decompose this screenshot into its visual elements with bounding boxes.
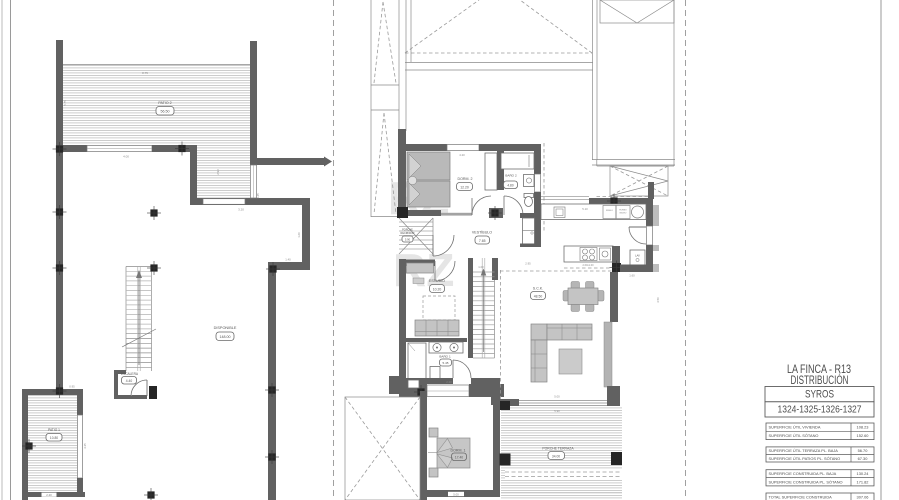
svg-text:1.00: 1.00	[478, 265, 484, 269]
svg-text:10.80: 10.80	[50, 436, 58, 440]
svg-text:5.10: 5.10	[582, 207, 588, 211]
svg-text:307.06: 307.06	[857, 495, 869, 500]
svg-text:34.00: 34.00	[552, 455, 560, 459]
svg-text:SUPERFICIE ÚTIL TERRAZA PL. BA: SUPERFICIE ÚTIL TERRAZA PL. BAJA	[769, 448, 839, 453]
svg-text:2.20: 2.20	[446, 380, 452, 384]
svg-text:130.24: 130.24	[857, 471, 870, 476]
svg-text:DORM. 1: DORM. 1	[451, 449, 466, 453]
svg-text:5.00: 5.00	[453, 492, 459, 496]
svg-text:5.90: 5.90	[405, 238, 411, 242]
svg-text:8.75: 8.75	[142, 71, 148, 75]
svg-text:5.90: 5.90	[554, 409, 560, 413]
svg-text:ESTUDIO: ESTUDIO	[429, 279, 445, 283]
svg-text:HORNO: HORNO	[619, 210, 627, 212]
svg-text:BAÑO 2: BAÑO 2	[505, 173, 517, 178]
svg-text:FRIGO: FRIGO	[606, 210, 613, 212]
svg-text:4.00: 4.00	[123, 155, 129, 159]
svg-text:1324-1325-1326-1327: 1324-1325-1326-1327	[778, 404, 862, 416]
svg-text:2.93: 2.93	[216, 169, 220, 175]
svg-text:RECIBIDOR: RECIBIDOR	[401, 232, 415, 235]
svg-text:108.23: 108.23	[857, 425, 869, 430]
svg-text:7.65: 7.65	[479, 239, 486, 243]
svg-text:1.60: 1.60	[297, 232, 301, 238]
svg-text:56.50: 56.50	[161, 110, 170, 114]
svg-text:17.40: 17.40	[455, 456, 463, 460]
svg-text:1.40: 1.40	[285, 258, 291, 262]
svg-text:2.95: 2.95	[525, 262, 531, 266]
svg-text:2.20: 2.20	[46, 493, 52, 497]
svg-text:2.60x1.00: 2.60x1.00	[583, 264, 595, 267]
svg-text:BAÑO 1: BAÑO 1	[439, 354, 451, 359]
svg-text:SUPERFICIE ÚTIL VIVIENDA: SUPERFICIE ÚTIL VIVIENDA	[769, 425, 821, 430]
svg-text:3.20: 3.20	[238, 208, 244, 212]
svg-text:67.30: 67.30	[858, 456, 869, 461]
svg-text:MICRO: MICRO	[620, 213, 627, 215]
svg-text:171.82: 171.82	[857, 479, 869, 484]
svg-text:SUPERFICIE ÚTIL SÓTANO: SUPERFICIE ÚTIL SÓTANO	[769, 433, 819, 438]
svg-text:DISPONIBLE: DISPONIBLE	[214, 326, 237, 330]
svg-text:ESCALERA: ESCALERA	[121, 372, 139, 376]
svg-text:PORCHE TERRAZA: PORCHE TERRAZA	[542, 447, 574, 451]
svg-text:SYROS: SYROS	[805, 389, 834, 401]
svg-text:PATIO 1: PATIO 1	[48, 428, 60, 432]
svg-text:5.45: 5.45	[442, 361, 448, 365]
svg-text:12.20: 12.20	[460, 186, 469, 190]
svg-text:SUPERFICIE CONSTRUIDA PL. BAJA: SUPERFICIE CONSTRUIDA PL. BAJA	[769, 471, 837, 476]
svg-text:1.60: 1.60	[629, 274, 635, 278]
svg-text:LAV: LAV	[635, 254, 640, 258]
svg-text:4.35: 4.35	[83, 443, 87, 449]
svg-text:S.C.K.: S.C.K.	[533, 287, 543, 291]
svg-text:0.95: 0.95	[69, 385, 75, 389]
svg-text:SUPERFICIE CONSTRUIDA PL. SÓTA: SUPERFICIE CONSTRUIDA PL. SÓTANO	[769, 479, 843, 484]
svg-text:4.40: 4.40	[126, 379, 133, 383]
svg-text:4.20: 4.20	[459, 153, 465, 157]
svg-text:SUPERFICIE ÚTIL PATIOS PL. SÓT: SUPERFICIE ÚTIL PATIOS PL. SÓTANO	[769, 456, 841, 461]
svg-text:152.60: 152.60	[857, 433, 870, 438]
svg-text:4.80: 4.80	[507, 184, 513, 188]
svg-text:148.00: 148.00	[220, 335, 231, 339]
svg-text:10.20: 10.20	[433, 288, 442, 292]
svg-text:4.50: 4.50	[656, 297, 660, 303]
svg-text:PATIO 2: PATIO 2	[158, 101, 171, 105]
svg-text:56.70: 56.70	[858, 448, 869, 453]
svg-text:DISTRIBUCIÓN: DISTRIBUCIÓN	[791, 374, 849, 387]
svg-text:VESTÍBULO: VESTÍBULO	[472, 231, 492, 235]
svg-text:5.00: 5.00	[554, 395, 560, 399]
svg-text:DORM. 2: DORM. 2	[458, 177, 473, 181]
svg-text:48.50: 48.50	[534, 295, 543, 299]
svg-text:TOTAL SUPERFICIE CONSTRUIDA: TOTAL SUPERFICIE CONSTRUIDA	[769, 495, 833, 500]
svg-text:5.75: 5.75	[63, 100, 67, 106]
